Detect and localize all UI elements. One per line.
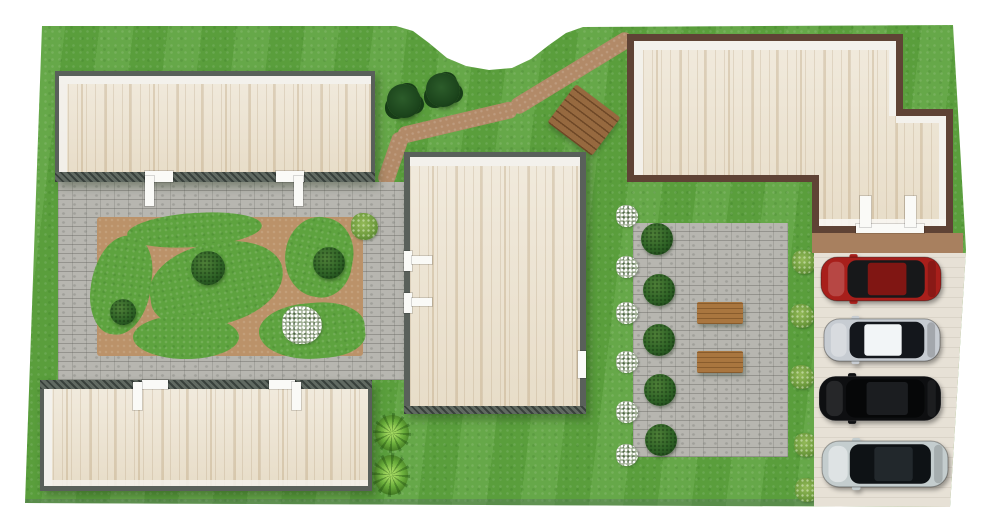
wall-top-texture (55, 172, 375, 182)
inner-wall-face (939, 123, 946, 226)
garden-bush (313, 247, 345, 279)
wooden-deck (547, 84, 621, 156)
car-rear (934, 445, 943, 483)
car-roof (864, 324, 901, 355)
patio-bush (643, 274, 675, 306)
garden-bush (191, 251, 225, 285)
car-red-suv (820, 253, 942, 305)
car-hood-highlight (831, 323, 847, 356)
palm-tuft (375, 415, 409, 451)
tree (387, 84, 421, 118)
side-shrub (790, 365, 814, 389)
terrace-dirt-strip (812, 233, 963, 253)
door-sill (142, 380, 168, 389)
flower-bush (616, 401, 638, 423)
door-leaf (133, 382, 142, 410)
south-west-building (40, 380, 372, 491)
door-leaf (292, 382, 301, 410)
patio-bush (645, 424, 677, 456)
car-hood-highlight (828, 446, 847, 482)
north-west-building (55, 71, 375, 182)
patio-bench (697, 302, 743, 324)
tree (426, 73, 460, 107)
car-silver-sedan (823, 315, 941, 365)
inner-wall-face (889, 41, 896, 116)
car-pale-silver-sedan (821, 436, 949, 492)
door-leaf (412, 256, 432, 264)
door-leaf (412, 298, 432, 306)
wall-top-texture (40, 380, 372, 389)
patio-bench (697, 351, 743, 373)
flower-bush (616, 444, 638, 466)
flower-bush (616, 205, 638, 227)
car-hood-highlight (828, 262, 844, 297)
garden-bush (110, 299, 136, 325)
palm-tuft (374, 455, 408, 495)
central-building-floor (410, 157, 580, 406)
door-leaf (860, 196, 871, 227)
car-roof (874, 447, 912, 481)
corner-shrub (351, 213, 378, 240)
patio-bush (641, 223, 673, 255)
door-sill (404, 293, 412, 313)
garden-bed (97, 217, 363, 356)
patio-bush (644, 374, 676, 406)
site-plan-canvas (0, 0, 1000, 508)
grass-area (0, 0, 1000, 508)
patio-bush (643, 324, 675, 356)
flower-bush (616, 351, 638, 373)
grass-island (133, 315, 239, 359)
central-building (404, 152, 586, 414)
door-leaf (145, 176, 154, 206)
car-rear (927, 322, 935, 357)
car-roof (868, 263, 907, 296)
door-sill (578, 351, 586, 378)
car-hood-highlight (826, 381, 843, 416)
door-leaf (905, 196, 916, 227)
car-rear (928, 380, 936, 417)
side-shrub (792, 250, 816, 274)
car-black-suv (818, 371, 942, 426)
north-west-building-floor (59, 76, 371, 172)
south-west-building-floor (44, 389, 368, 486)
car-roof (867, 382, 908, 415)
inner-wall-face (896, 116, 946, 123)
flower-bush (282, 306, 322, 344)
flower-bush (616, 302, 638, 324)
door-leaf (294, 176, 303, 206)
wall-top-texture (404, 406, 586, 414)
car-rear (928, 261, 936, 298)
side-shrub (790, 304, 814, 328)
flower-bush (616, 256, 638, 278)
door-sill (404, 251, 412, 271)
